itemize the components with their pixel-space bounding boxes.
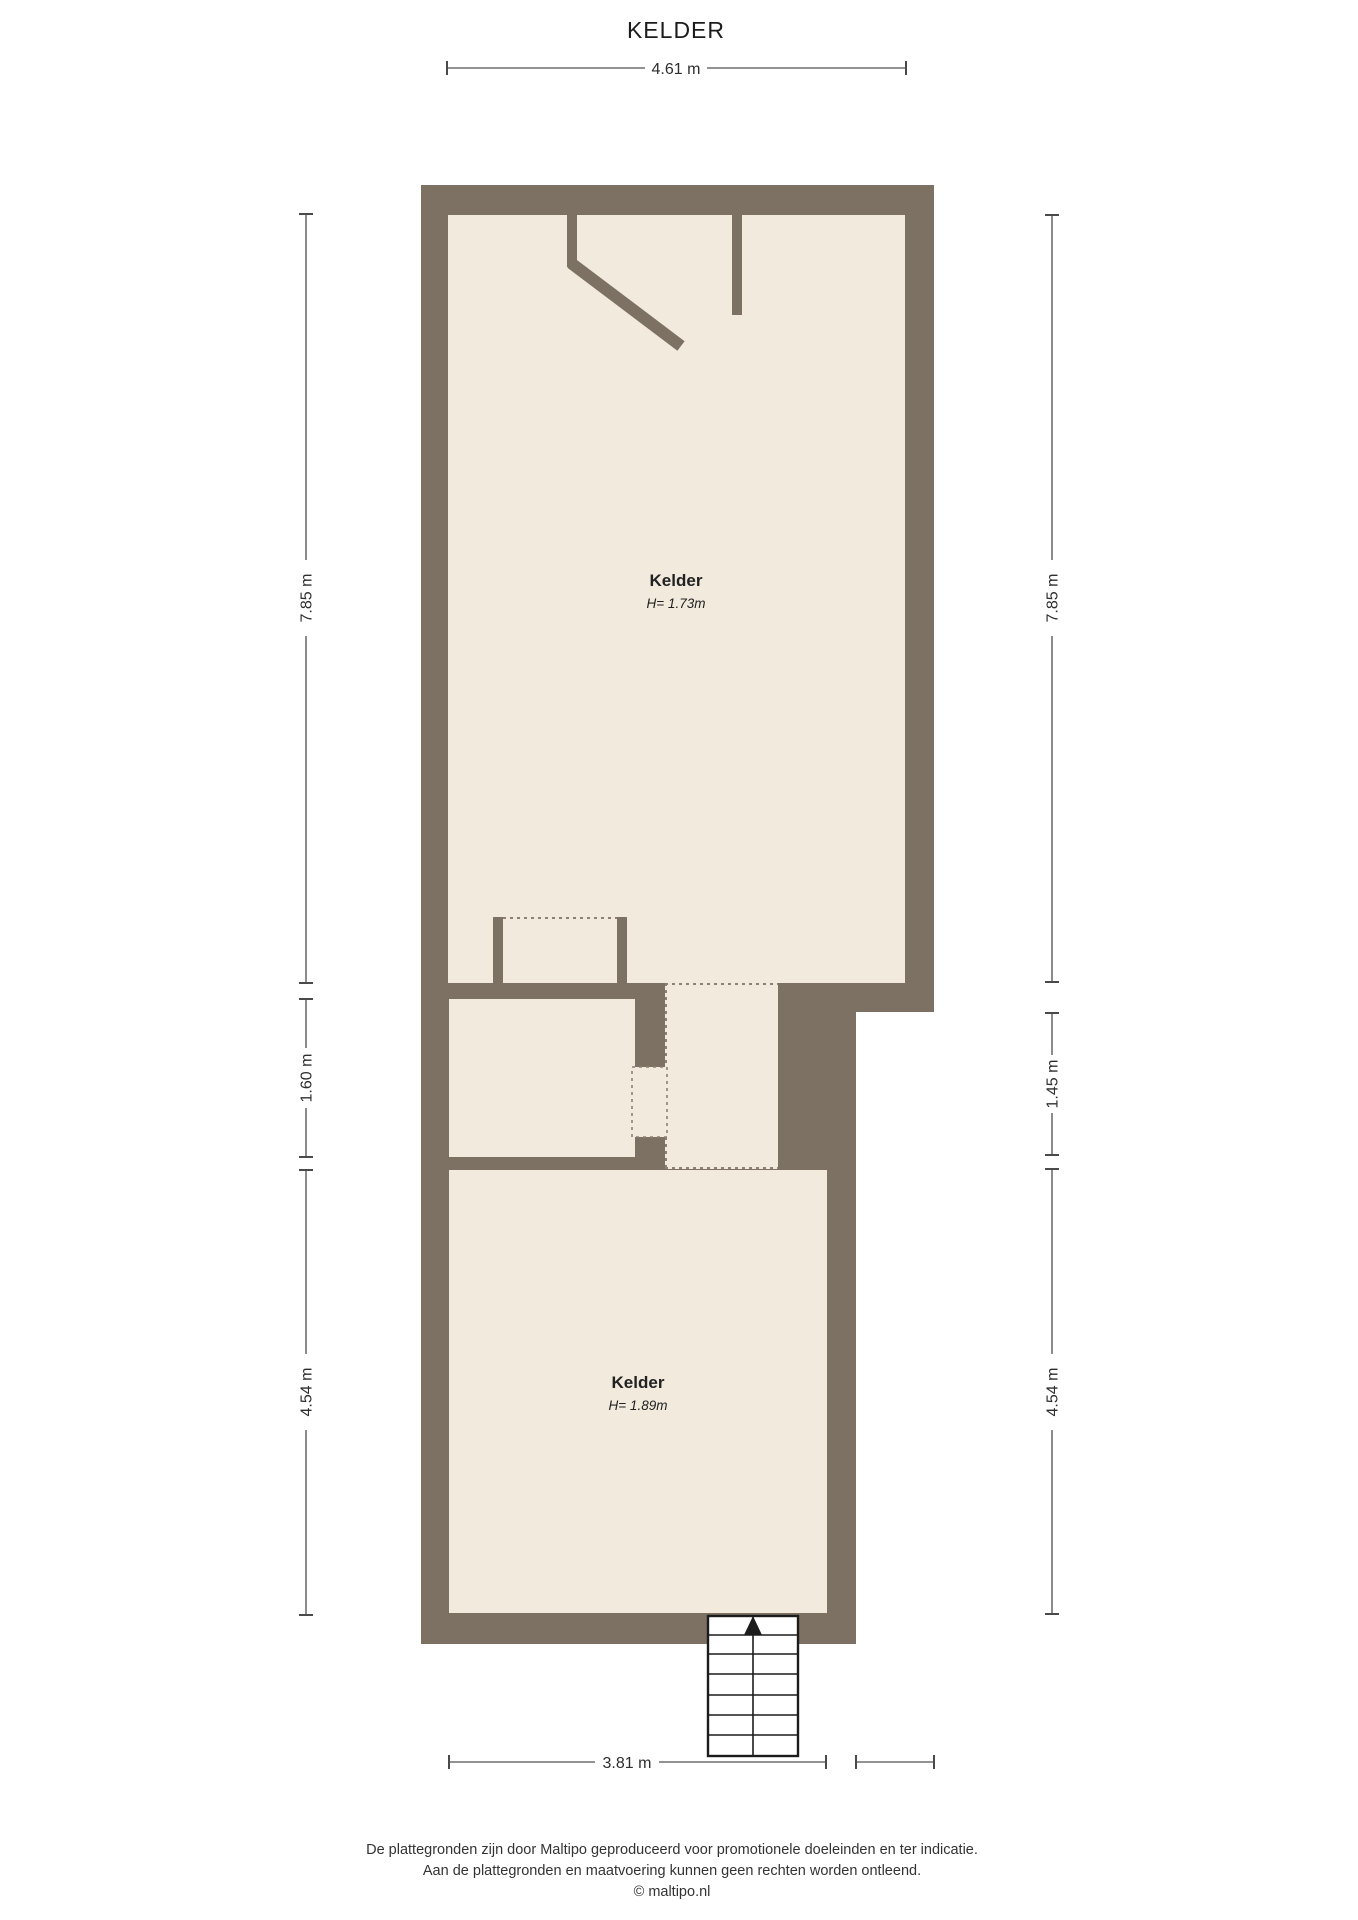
footer-line-2: Aan de plattegronden en maatvoering kunn… <box>423 1863 921 1879</box>
dimension-label-right-top: 7.85 m <box>1045 574 1062 623</box>
floorplan-canvas: KELDER <box>0 0 1358 1920</box>
dimension-label-top: 4.61 m <box>652 61 701 78</box>
dimension-right-top: 7.85 m <box>1045 215 1062 982</box>
dimension-left-bottom: 4.54 m <box>299 1170 316 1615</box>
storage-room-floor <box>449 999 635 1157</box>
footer-line-3: © maltipo.nl <box>634 1884 711 1900</box>
dimension-label-right-bottom: 4.54 m <box>1045 1368 1062 1417</box>
dimension-label-left-middle: 1.60 m <box>299 1054 316 1103</box>
dimension-bottom: 3.81 m <box>449 1755 826 1772</box>
niche-wall-stub-left <box>493 917 503 983</box>
dimension-label-bottom: 3.81 m <box>603 1755 652 1772</box>
dimension-left-top: 7.85 m <box>299 214 316 983</box>
floorplan-page: KELDER <box>0 0 1358 1920</box>
page-title: KELDER <box>627 17 725 43</box>
room-name-upper: Kelder <box>650 571 703 590</box>
dimension-bottom-step <box>856 1755 934 1769</box>
footer-disclaimer: De plattegronden zijn door Maltipo gepro… <box>366 1842 978 1900</box>
dimension-label-right-middle: 1.45 m <box>1045 1060 1062 1109</box>
dimension-top: 4.61 m <box>447 61 906 78</box>
dimension-right-bottom: 4.54 m <box>1045 1169 1062 1614</box>
wall-stub-top-right <box>732 215 742 315</box>
room-height-lower: H= 1.89m <box>609 1398 668 1413</box>
door-opening-dashed <box>632 1067 667 1137</box>
dimension-label-left-top: 7.85 m <box>299 574 316 623</box>
dimension-label-left-bottom: 4.54 m <box>299 1368 316 1417</box>
footer-line-1: De plattegronden zijn door Maltipo gepro… <box>366 1842 978 1858</box>
stair-landing-floor <box>665 983 778 1169</box>
staircase <box>708 1616 798 1756</box>
niche-wall-stub-right <box>617 917 627 983</box>
room-height-upper: H= 1.73m <box>647 596 706 611</box>
dimension-left-middle: 1.60 m <box>299 999 316 1157</box>
dimension-right-middle: 1.45 m <box>1045 1013 1062 1155</box>
room-name-lower: Kelder <box>612 1373 665 1392</box>
